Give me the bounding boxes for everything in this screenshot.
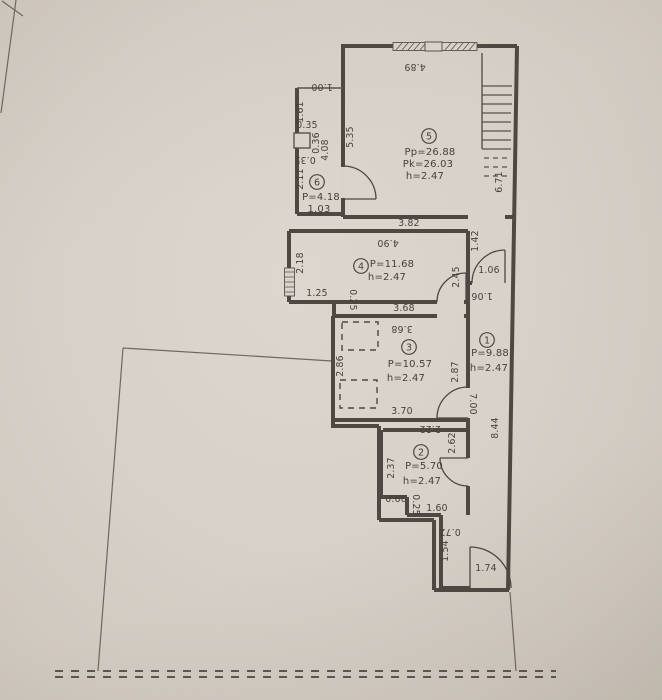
room-label: h=2.47 (368, 272, 406, 283)
room-number: 1 (484, 335, 490, 346)
dimension-label: 0.25 (410, 494, 421, 516)
corner-survey-mark (1, 0, 23, 113)
dimension-label: 0.66 (385, 494, 407, 505)
dimension-label: 0.35 (294, 154, 316, 165)
dimension-label: 1.60 (426, 503, 448, 514)
floorplan-svg: 1P=9.88h=2.472P=5.70h=2.473P=10.57h=2.47… (0, 0, 662, 700)
photographed-floor-plan: 1P=9.88h=2.472P=5.70h=2.473P=10.57h=2.47… (0, 0, 662, 700)
room-number: 3 (406, 342, 412, 353)
window-room4-left-wall (285, 268, 295, 296)
room-number: 2 (418, 447, 424, 458)
room-label: h=2.47 (470, 363, 508, 374)
dimension-label: 2.45 (451, 266, 462, 288)
door-room3 (437, 387, 468, 418)
room-label: Pp=26.88 (405, 147, 456, 158)
window-top-wall (393, 42, 477, 51)
room-label: P=4.18 (302, 192, 340, 203)
dimension-label: 5.35 (345, 126, 356, 148)
dimension-label: 1.06 (478, 265, 500, 276)
room-label: P=10.57 (388, 359, 432, 370)
dimension-label: 1.06 (471, 290, 493, 301)
walls (289, 46, 517, 590)
dimension-label: 3.82 (398, 218, 420, 229)
room-label: P=9.88 (471, 348, 509, 359)
room-number: 4 (358, 261, 364, 272)
dimension-label: 1.00 (311, 81, 333, 92)
dimension-label: 2.11 (295, 168, 306, 190)
room-label: 1.03 (307, 204, 330, 215)
dimension-label: 3.68 (391, 323, 413, 334)
dimension-label: 1.54 (440, 540, 451, 562)
dimension-label: 4.90 (377, 237, 399, 248)
dimension-label: 0.25 (347, 289, 358, 311)
lot-boundary (55, 348, 556, 677)
door-room2 (440, 458, 468, 486)
dimension-label: 4.89 (404, 61, 426, 72)
dimension-label: 6.71 (494, 171, 505, 193)
fence-dashed-line (55, 671, 556, 677)
room-label: h=2.47 (406, 171, 444, 182)
dimension-label: 4.08 (320, 139, 331, 161)
room-label: h=2.47 (403, 476, 441, 487)
dimension-label: 3.70 (391, 406, 413, 417)
room-label: P=11.68 (370, 259, 414, 270)
dimension-label: 3.68 (393, 303, 415, 314)
door-room6-to-room5 (343, 166, 376, 199)
duct-room6 (294, 133, 310, 148)
dimension-label: 2.86 (335, 355, 346, 377)
dimension-label: 1.42 (470, 230, 481, 252)
room-label: Pk=26.03 (403, 159, 453, 170)
staircase (482, 53, 512, 176)
dimension-label: 2.18 (295, 252, 306, 274)
dimension-label: 1.74 (475, 563, 497, 574)
room-label: h=2.47 (387, 373, 425, 384)
room-label: P=5.70 (405, 461, 443, 472)
dimension-label: 8.44 (490, 417, 501, 439)
dimension-label: 2.37 (386, 457, 397, 479)
dimension-label: 1.25 (306, 288, 328, 299)
dimension-label: 7.00 (467, 393, 478, 415)
dimension-label: 0.72 (439, 526, 461, 537)
dimension-label: 2.62 (447, 432, 458, 454)
room-number: 6 (314, 177, 320, 188)
dimension-label: 2.87 (450, 361, 461, 383)
room-number: 5 (426, 131, 432, 142)
dimension-label: 2.22 (419, 423, 441, 434)
dimension-label: 0.35 (296, 120, 318, 131)
